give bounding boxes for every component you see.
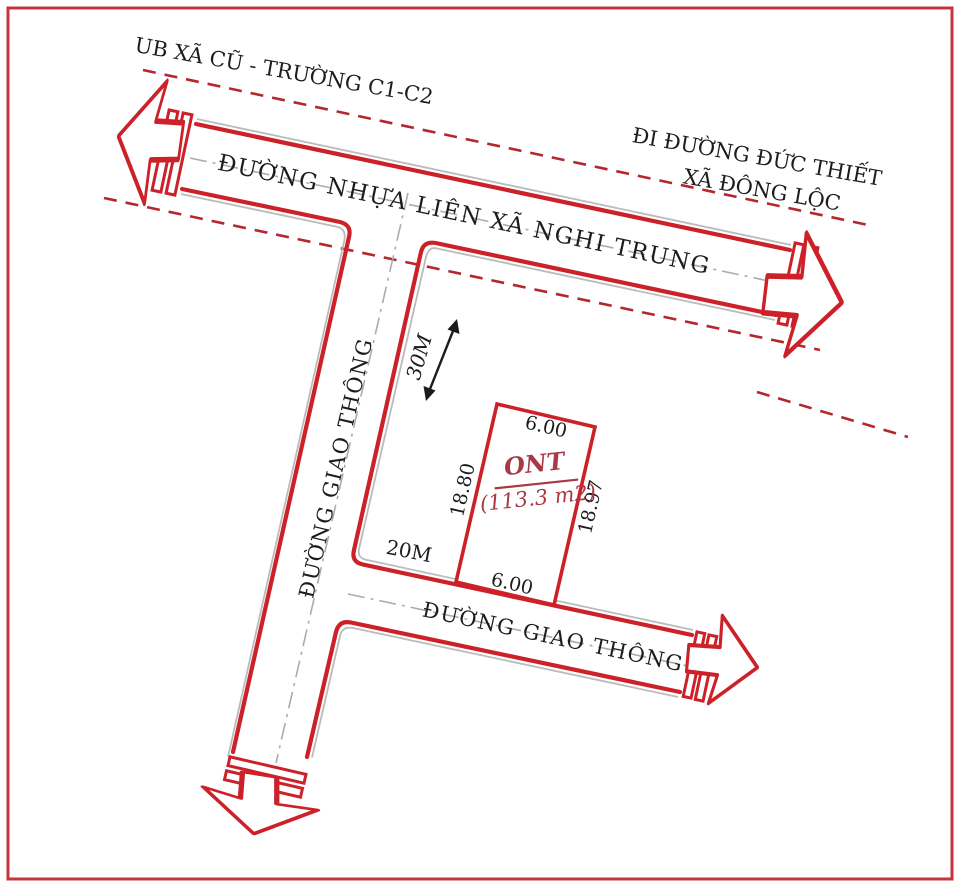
- distance-20m-label: 20M: [384, 535, 434, 567]
- diagram-canvas: UB XÃ CŨ - TRƯỜNG C1-C2 ĐI ĐƯỜNG ĐỨC THI…: [0, 0, 960, 887]
- vertical-road-name-label: ĐƯỜNG GIAO THÔNG: [293, 335, 377, 600]
- land-plot-diagram: UB XÃ CŨ - TRƯỜNG C1-C2 ĐI ĐƯỜNG ĐỨC THI…: [0, 0, 960, 887]
- planning-dashed-line-lower-right: [757, 392, 908, 437]
- gray-offset-line-main-bottom-left: [181, 194, 345, 757]
- main-road-name-label: ĐƯỜNG NHỰA LIÊN XÃ NGHI TRUNG: [215, 148, 713, 280]
- landmark-top-left-label: UB XÃ CŨ - TRƯỜNG C1-C2: [133, 32, 435, 109]
